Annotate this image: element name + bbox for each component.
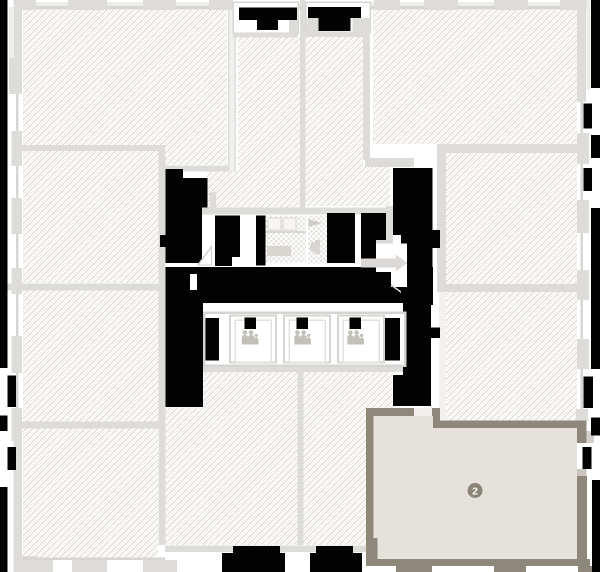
svg-text:2: 2 (472, 486, 478, 498)
